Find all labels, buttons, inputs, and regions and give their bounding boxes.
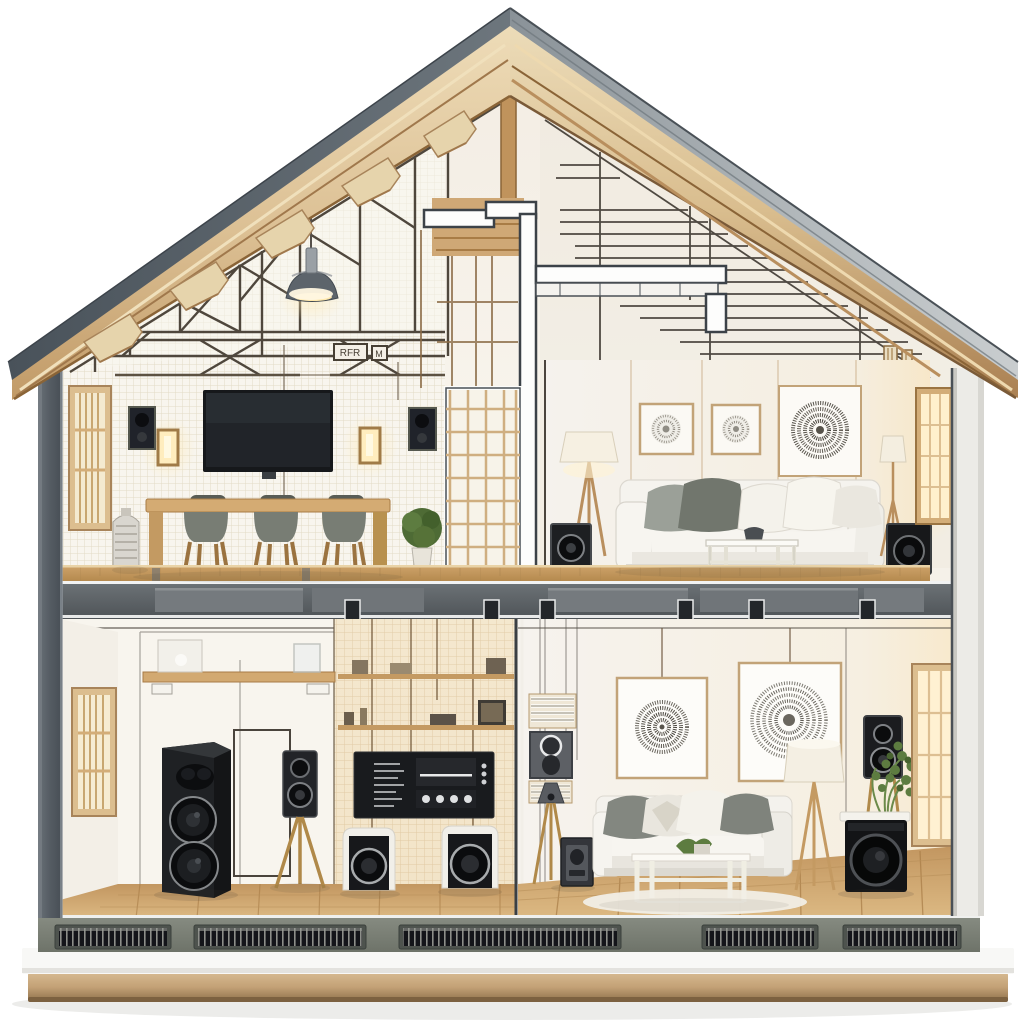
svg-text:RFR: RFR bbox=[340, 348, 361, 359]
svg-text:M: M bbox=[375, 349, 383, 359]
